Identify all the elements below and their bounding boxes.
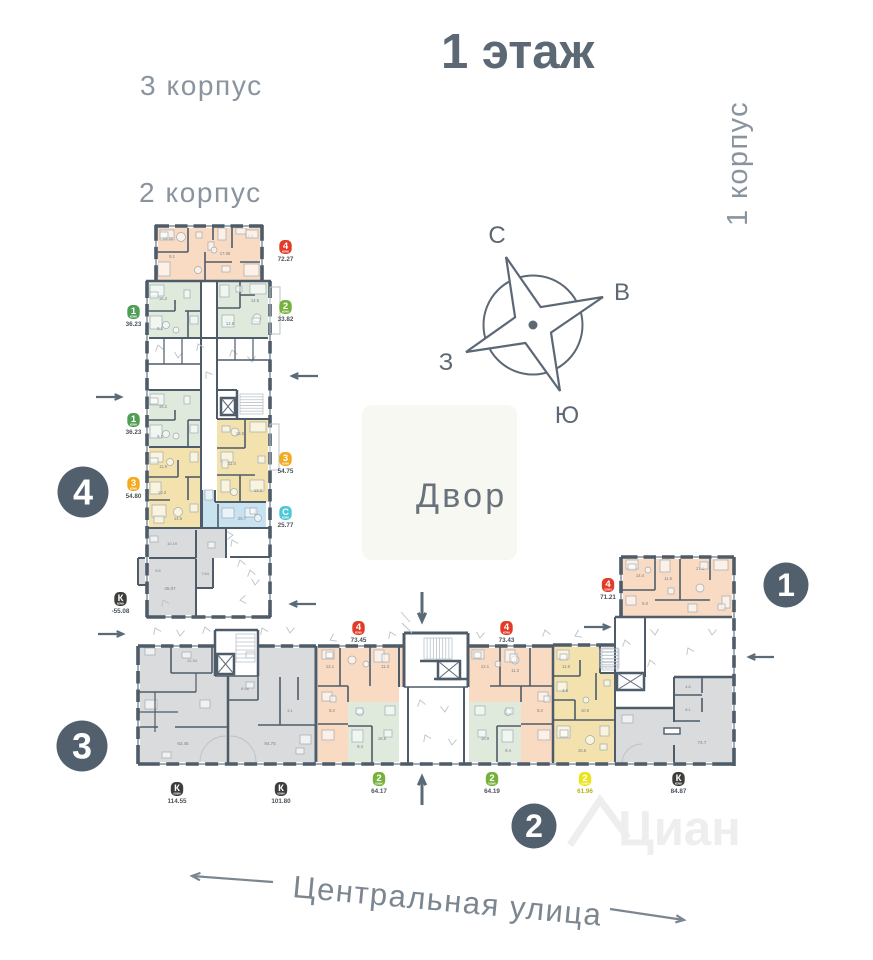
svg-text:6.0: 6.0 xyxy=(642,601,648,606)
svg-text:54.80: 54.80 xyxy=(126,493,142,500)
svg-text:КОМН: КОМН xyxy=(117,603,124,606)
svg-text:101.80: 101.80 xyxy=(271,798,291,805)
svg-text:8.2: 8.2 xyxy=(329,708,335,713)
svg-text:12.1: 12.1 xyxy=(326,664,335,669)
svg-text:45.07: 45.07 xyxy=(164,586,176,591)
svg-text:Двор: Двор xyxy=(416,477,507,515)
svg-text:25.77: 25.77 xyxy=(278,522,294,529)
svg-text:-55.08: -55.08 xyxy=(112,608,130,615)
svg-text:64.17: 64.17 xyxy=(371,788,387,795)
svg-text:61.96: 61.96 xyxy=(577,788,593,795)
svg-text:62.45: 62.45 xyxy=(177,741,189,746)
svg-text:4: 4 xyxy=(73,472,93,513)
svg-text:11.9: 11.9 xyxy=(159,464,168,469)
svg-text:36.23: 36.23 xyxy=(126,321,142,328)
svg-text:9.1: 9.1 xyxy=(157,434,163,439)
svg-text:25.7: 25.7 xyxy=(238,516,247,521)
svg-text:КОМН: КОМН xyxy=(282,251,289,254)
svg-text:4.6: 4.6 xyxy=(562,688,568,693)
svg-text:8.2: 8.2 xyxy=(537,708,543,713)
svg-text:3 корпус: 3 корпус xyxy=(140,70,263,101)
svg-text:4.6: 4.6 xyxy=(685,684,691,689)
svg-text:КОМН: КОМН xyxy=(675,783,682,786)
svg-text:12.1: 12.1 xyxy=(481,664,490,669)
svg-text:КОМН: КОМН xyxy=(282,463,289,466)
svg-text:84.75: 84.75 xyxy=(264,741,276,746)
svg-text:72.27: 72.27 xyxy=(278,256,294,263)
svg-text:КОМН: КОМН xyxy=(581,783,588,786)
svg-text:1 корпус: 1 корпус xyxy=(722,101,754,226)
svg-text:В: В xyxy=(614,279,630,306)
svg-text:9.1: 9.1 xyxy=(169,254,175,259)
svg-text:17.08: 17.08 xyxy=(220,251,231,256)
svg-text:14.4: 14.4 xyxy=(636,573,645,578)
svg-text:11.5: 11.5 xyxy=(664,576,673,581)
svg-text:11.3: 11.3 xyxy=(381,664,390,669)
svg-text:84.87: 84.87 xyxy=(671,788,687,795)
svg-text:14.6: 14.6 xyxy=(174,516,183,521)
svg-text:11.8: 11.8 xyxy=(562,664,571,669)
svg-text:11.3: 11.3 xyxy=(511,668,520,673)
svg-text:10.9: 10.9 xyxy=(581,708,590,713)
svg-text:КОМН: КОМН xyxy=(130,424,137,427)
svg-text:73.45: 73.45 xyxy=(351,637,367,644)
svg-text:КОМН: КОМН xyxy=(355,632,362,635)
svg-text:64.19: 64.19 xyxy=(484,788,500,795)
svg-text:12.34: 12.34 xyxy=(187,658,198,663)
svg-text:9.1: 9.1 xyxy=(157,326,163,331)
svg-text:КОМН: КОМН xyxy=(282,517,289,520)
svg-text:10.19: 10.19 xyxy=(167,541,178,546)
svg-text:КОМН: КОМН xyxy=(130,316,137,319)
svg-text:3.1: 3.1 xyxy=(287,708,293,713)
svg-text:КОМН: КОМН xyxy=(130,488,137,491)
svg-text:10.3: 10.3 xyxy=(158,490,167,495)
svg-text:36.23: 36.23 xyxy=(126,429,142,436)
svg-text:1 этаж: 1 этаж xyxy=(441,25,596,79)
svg-text:8.1: 8.1 xyxy=(685,707,691,712)
svg-text:КОМН: КОМН xyxy=(604,589,611,592)
svg-text:Ю: Ю xyxy=(555,402,579,429)
svg-text:16.2: 16.2 xyxy=(159,404,168,409)
svg-text:КОМН: КОМН xyxy=(375,783,382,786)
svg-text:КОМН: КОМН xyxy=(503,632,510,635)
svg-text:74.7: 74.7 xyxy=(698,740,707,745)
svg-text:114.55: 114.55 xyxy=(168,798,187,805)
svg-text:14.5: 14.5 xyxy=(251,298,260,303)
svg-text:11.0: 11.0 xyxy=(228,461,237,466)
svg-text:7.64: 7.64 xyxy=(201,571,210,576)
svg-text:15.5: 15.5 xyxy=(578,748,587,753)
svg-text:КОМН: КОМН xyxy=(277,793,284,796)
svg-text:КОМН: КОМН xyxy=(173,793,180,796)
svg-text:С: С xyxy=(488,222,505,249)
svg-text:33.82: 33.82 xyxy=(278,316,294,323)
svg-text:16.2: 16.2 xyxy=(159,296,168,301)
svg-text:54.75: 54.75 xyxy=(278,468,294,475)
svg-text:2 корпус: 2 корпус xyxy=(139,177,262,208)
svg-text:12.8: 12.8 xyxy=(226,321,235,326)
svg-text:КОМН: КОМН xyxy=(488,783,495,786)
svg-text:2: 2 xyxy=(525,808,543,844)
svg-text:КОМН: КОМН xyxy=(282,311,289,314)
svg-text:Циан: Циан xyxy=(618,802,741,856)
svg-text:9.4: 9.4 xyxy=(505,748,511,753)
svg-text:9.4: 9.4 xyxy=(357,744,363,749)
svg-text:1: 1 xyxy=(777,567,795,603)
svg-text:73.43: 73.43 xyxy=(499,637,515,644)
svg-text:9.6: 9.6 xyxy=(155,568,161,573)
svg-text:16.5: 16.5 xyxy=(236,431,245,436)
svg-text:З: З xyxy=(439,349,454,376)
svg-text:13.2: 13.2 xyxy=(254,488,263,493)
svg-text:3: 3 xyxy=(72,726,92,767)
svg-text:71.21: 71.21 xyxy=(600,594,616,601)
